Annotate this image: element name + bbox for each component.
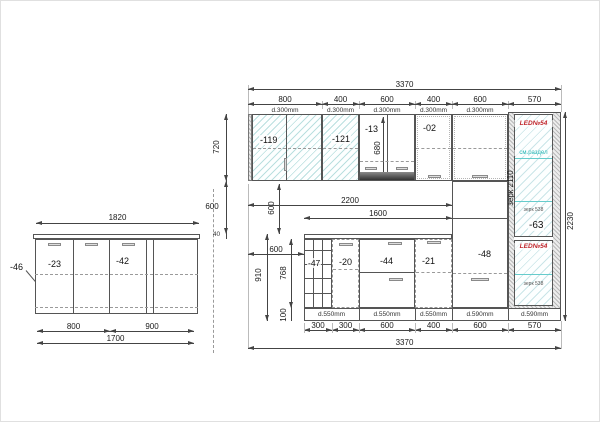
upper-cabinet-label: -02 (422, 123, 437, 133)
dim-top-segment-label: 600 (359, 95, 415, 104)
island-top-dim-line (36, 223, 199, 224)
door-handle (472, 175, 488, 178)
drawer-handle (389, 278, 403, 281)
dim-top-segment-line (452, 104, 508, 105)
countertop-dim-line (226, 234, 227, 239)
dim-bottom-segment-line (452, 330, 508, 331)
upper-cabinet-label: -119 (259, 135, 278, 145)
depth-label-bottom: d.550mm (415, 311, 452, 318)
base-total-dim-label: 910 (255, 255, 263, 295)
island-cabinet-label: -42 (115, 256, 130, 266)
backsplash-inner-dim-line (279, 184, 280, 234)
tall-column-cabinet (452, 181, 508, 308)
dim-top-segment-line (322, 104, 359, 105)
base-cabinet-label: -21 (421, 256, 436, 266)
island-base-cabinet (35, 239, 198, 314)
base-height-dim-label: 768 (280, 253, 288, 293)
base-run-dim-line (304, 218, 452, 219)
section-note: см.раздел (514, 150, 553, 156)
drawer-outline (453, 273, 507, 274)
plinth-dim-line (291, 308, 292, 321)
island-shelf-line (35, 307, 198, 308)
upper-height-dim-label: 720 (213, 127, 221, 167)
wall-gap-dim-line (248, 254, 304, 255)
tall-cabinet-side-panel (553, 113, 560, 310)
door-handle (284, 158, 287, 171)
island-divider (146, 239, 147, 314)
island-door-handle (48, 243, 61, 246)
door-divider (387, 114, 388, 181)
depth-label-top: d.300mm (415, 107, 452, 114)
dim-top-segment-label: 400 (322, 95, 359, 104)
counter-run-dim-label: 2200 (248, 196, 452, 205)
drawer-divider (359, 272, 415, 273)
base-open-cabinet (332, 239, 359, 308)
dim-bottom-segment-label: 300 (304, 321, 332, 330)
shelf-line (416, 272, 451, 273)
elevation-top-total-line (248, 89, 561, 90)
dim-bottom-segment-label: 600 (452, 321, 508, 330)
depth-label-top: d.300mm (359, 107, 415, 114)
shelf-line (333, 269, 358, 270)
plinth-dim-label: 100 (280, 295, 288, 335)
elevation-bottom-total-label: 3370 (248, 338, 561, 347)
door-handle (427, 241, 441, 244)
depth-label-top: d.300mm (248, 107, 322, 114)
upper-height-dim-line (226, 114, 227, 181)
dim-tick (359, 323, 360, 333)
dim-top-segment-label: 600 (452, 95, 508, 104)
tall-height-dim-label: 2230 (567, 201, 575, 241)
upper-cabinet-label: -121 (331, 134, 351, 144)
extension-line (248, 184, 249, 349)
backsplash-dim-line (226, 181, 227, 234)
island-cabinet-label: -23 (47, 259, 62, 269)
rack-shelf (304, 250, 332, 251)
hood-vent-slot (365, 167, 377, 170)
rack-shelf (304, 293, 332, 294)
dim-tick (332, 323, 333, 333)
dim-bottom-segment-label: 400 (415, 321, 452, 330)
door-handle (339, 243, 353, 246)
mirror-joint-line (515, 201, 552, 202)
island-top-dim-label: 1820 (36, 213, 199, 222)
island-divider (153, 239, 154, 314)
dim-bottom-segment-line (304, 330, 332, 331)
elevation-bottom-total-line (248, 348, 561, 349)
column-divider (452, 218, 508, 219)
shelf-line (416, 148, 451, 149)
depth-label-bottom: d.590mm (452, 311, 508, 318)
backsplash-dim-label: 600 (201, 202, 223, 211)
mirror-height-note: зерк 2110 (507, 168, 515, 208)
drawer-handle (471, 278, 489, 281)
tall-cabinet-label: -63 (528, 221, 544, 231)
section-break-line (213, 189, 214, 353)
island-total-dim-line (37, 343, 194, 344)
dim-bottom-segment-line (508, 330, 561, 331)
dim-bottom-segment-line (359, 330, 415, 331)
depth-label-bottom: d.590mm (508, 311, 561, 318)
island-divider (109, 239, 110, 314)
island-total-dim-label: 1700 (37, 334, 194, 343)
base-cabinet-label: -48 (477, 249, 492, 259)
dim-tick (452, 323, 453, 333)
extension-line (561, 321, 562, 349)
backsplash-inner-dim-label: 600 (268, 188, 276, 228)
depth-label-top: d.300mm (452, 107, 508, 114)
shelf-line (360, 161, 414, 162)
led-note-top: LED№54 (514, 120, 553, 127)
dim-tick (415, 323, 416, 333)
hood-opening-dim-label: 680 (374, 128, 382, 168)
base-drawer-cabinet (359, 239, 415, 308)
base-cabinet-label: -20 (338, 257, 353, 267)
mirror-note: зерк 538 (514, 281, 553, 287)
mirror-joint-line (515, 158, 552, 159)
island-bottom-dim-line (110, 331, 194, 332)
dim-top-segment-label: 400 (415, 95, 452, 104)
base-cabinet-label: -44 (379, 256, 394, 266)
dim-top-segment-line (248, 104, 322, 105)
drawer-handle (388, 242, 402, 245)
hood-opening-dim-line (383, 117, 384, 178)
led-note-bottom: LED№54 (514, 243, 553, 250)
shelf-line (453, 148, 507, 149)
island-counter-label: -46 (9, 262, 24, 272)
dim-tick (508, 323, 509, 333)
dim-bottom-segment-line (415, 330, 452, 331)
dim-bottom-segment-label: 570 (508, 321, 561, 330)
dim-bottom-segment-label: 300 (332, 321, 359, 330)
dim-top-segment-line (415, 104, 452, 105)
island-bottom-dim-label: 800 (37, 322, 110, 331)
dim-top-segment-line (508, 104, 561, 105)
shelf-line (253, 148, 321, 149)
island-shelf-line (35, 274, 198, 275)
dim-top-segment-label: 800 (248, 95, 322, 104)
elevation-top-total-label: 3370 (248, 80, 561, 89)
base-door-cabinet (415, 239, 452, 308)
dim-bottom-segment-label: 600 (359, 321, 415, 330)
shelf-line (323, 148, 358, 149)
dim-tick (561, 101, 562, 109)
counter-run-dim-line (248, 205, 452, 206)
mirror-note: зерк 538 (514, 207, 553, 213)
rack-shelf (304, 278, 332, 279)
dim-bottom-segment-line (332, 330, 359, 331)
island-door-handle (85, 243, 98, 246)
dim-top-segment-label: 570 (508, 95, 561, 104)
hood-vent-slot (396, 167, 408, 170)
dim-top-segment-line (359, 104, 415, 105)
depth-label-bottom: d.550mm (359, 311, 415, 318)
base-cabinet-label: -47 (307, 258, 321, 268)
base-run-dim-label: 1600 (304, 209, 452, 218)
island-divider (73, 239, 74, 314)
island-bottom-dim-line (37, 331, 110, 332)
extractor-hood (360, 172, 414, 180)
wall-gap-dim-label: 600 (248, 245, 304, 254)
door-handle (428, 175, 441, 178)
island-door-handle (122, 243, 135, 246)
tall-cabinet-mirror-door-top (514, 114, 553, 237)
island-bottom-dim-label: 900 (110, 322, 194, 331)
depth-label-bottom: d.550mm (304, 311, 359, 318)
drawing-sheet: 1820 -23 -42 -46 800 900 1700 3370 (0, 0, 600, 422)
dim-tick (304, 323, 305, 333)
mirror-joint-line (515, 274, 552, 275)
depth-label-top: d.300mm (322, 107, 359, 114)
countertop-dim-label: 40 (210, 231, 223, 238)
